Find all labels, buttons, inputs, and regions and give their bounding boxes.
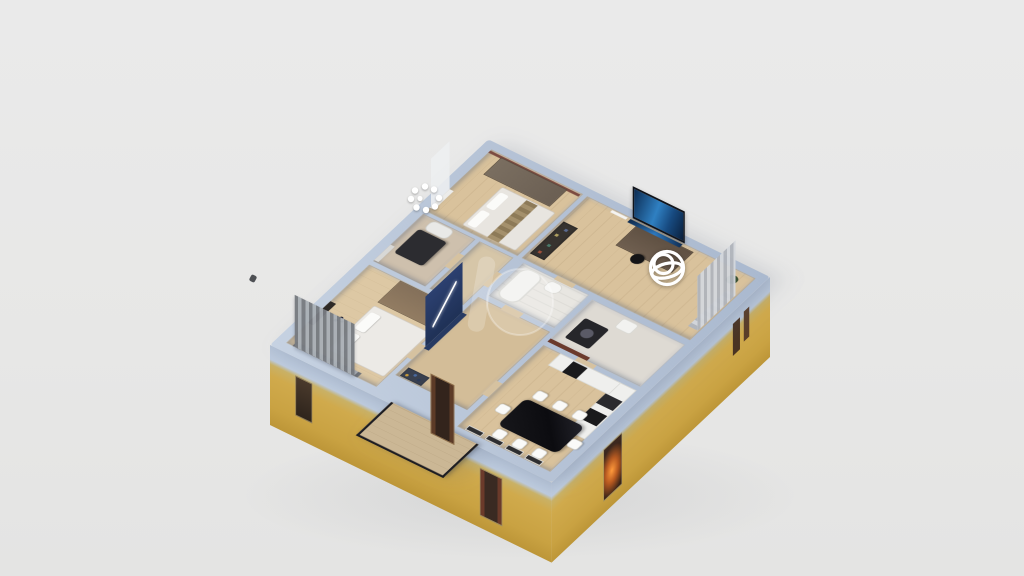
render-viewport [0,0,1024,576]
book [564,229,569,232]
window-se-sliver-1 [733,317,740,356]
balcony-door [431,373,455,445]
decor-item [416,378,421,381]
ceiling-light-ring-icon [405,181,445,217]
window-sw [480,468,503,527]
decor-item [404,373,409,376]
book [554,234,559,237]
panorama-hotspot-icon[interactable] [644,245,690,291]
window-se-lit [603,432,622,501]
window-se-sliver-2 [744,307,749,342]
floating-debris-speck [249,274,258,283]
decor-item [413,374,418,377]
window-sw-small [295,375,312,423]
render-watermark [440,240,600,380]
